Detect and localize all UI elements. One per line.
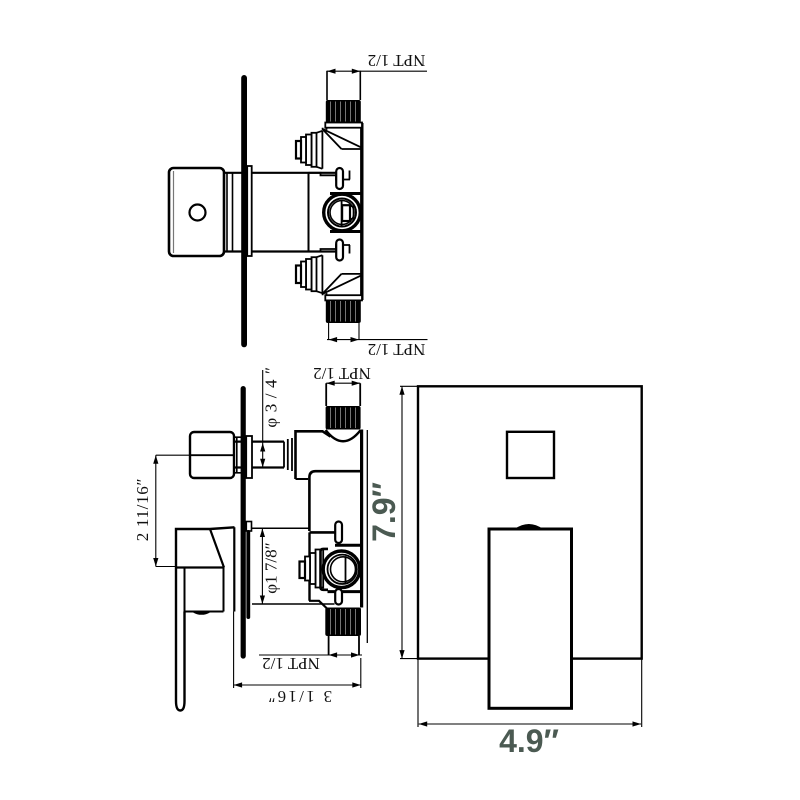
svg-text:3 1/16″: 3 1/16″ (266, 687, 332, 706)
svg-text:7.9″: 7.9″ (366, 482, 402, 542)
svg-text:NPT 1/2: NPT 1/2 (368, 340, 426, 359)
svg-text:NPT 1/2: NPT 1/2 (368, 51, 426, 70)
svg-text:4.9″: 4.9″ (499, 723, 559, 759)
svg-text:φ3/4″: φ3/4″ (262, 361, 281, 427)
svg-text:φ1 7/8″: φ1 7/8″ (262, 542, 281, 593)
svg-text:NPT 1/2: NPT 1/2 (313, 364, 371, 383)
svg-text:NPT 1/2: NPT 1/2 (262, 654, 320, 673)
svg-text:2 11/16″: 2 11/16″ (133, 478, 152, 542)
